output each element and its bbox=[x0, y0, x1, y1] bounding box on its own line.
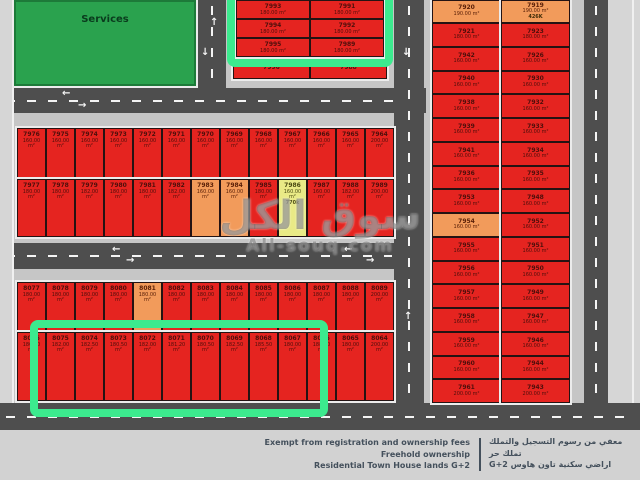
arrow-left-icon: ← bbox=[344, 245, 352, 255]
plot-7964: 7964200.00 m² bbox=[365, 128, 394, 179]
road-middle-horizontal bbox=[0, 243, 398, 269]
arrow-right-icon: → bbox=[126, 256, 134, 266]
plot-7975: 7975160.00 m² bbox=[46, 128, 75, 179]
plot-7980: 7980180.00 m² bbox=[104, 179, 133, 237]
arrow-left-icon: ← bbox=[62, 89, 70, 99]
legend-ar-line1: معفي من رسوم التسجيل والتملك bbox=[489, 436, 634, 448]
arrow-down-icon: ↓ bbox=[201, 48, 209, 58]
highlight-box-bottom bbox=[30, 320, 328, 417]
legend-english: Exempt from registration and ownership f… bbox=[150, 437, 470, 472]
plot-7983: 7983160.00 m² bbox=[191, 179, 220, 237]
plot-7986: 7986160.00 m²770k bbox=[278, 179, 307, 237]
plot-7972: 7972160.00 m² bbox=[133, 128, 162, 179]
arrow-right-icon: → bbox=[366, 256, 374, 266]
plot-8089: 8089200.00 m² bbox=[365, 282, 394, 332]
plot-7919: 7919190.00 m²426K bbox=[501, 0, 570, 23]
arrow-right-icon: → bbox=[78, 101, 86, 111]
plot-7948: 7948160.00 m² bbox=[501, 189, 570, 213]
plot-7938: 7938160.00 m² bbox=[432, 94, 501, 118]
plot-7958: 7958160.00 m² bbox=[432, 308, 501, 332]
plot-7981: 7981180.00 m² bbox=[133, 179, 162, 237]
plot-7989: 7989200.00 m² bbox=[365, 179, 394, 237]
plot-7974: 7974160.00 m² bbox=[75, 128, 104, 179]
plot-7926: 7926160.00 m² bbox=[501, 47, 570, 71]
plot-7955: 7955160.00 m² bbox=[432, 237, 501, 261]
arrow-up-icon: ↑ bbox=[210, 18, 218, 28]
plot-7949: 7949160.00 m² bbox=[501, 284, 570, 308]
plot-7987: 7987160.00 m² bbox=[307, 179, 336, 237]
plot-7935: 7935160.00 m² bbox=[501, 166, 570, 190]
plot-7960: 7960160.00 m² bbox=[432, 356, 501, 380]
plot-7967: 7967160.00 m² bbox=[278, 128, 307, 179]
plot-7977: 7977180.00 m² bbox=[17, 179, 46, 237]
legend-en-line3: Residential Town House lands G+2 bbox=[150, 460, 470, 472]
right-plot-column-west: 7920190.00 m²7921180.00 m²7942160.00 m²7… bbox=[432, 0, 501, 403]
plot-7968: 7968160.00 m² bbox=[249, 128, 278, 179]
plot-7950: 7950160.00 m² bbox=[501, 261, 570, 285]
plot-7961: 7961200.00 m² bbox=[432, 379, 501, 403]
plot-7970: 7970160.00 m² bbox=[191, 128, 220, 179]
plot-8064: 8064200.00 m² bbox=[365, 332, 394, 401]
road-center-vertical bbox=[394, 0, 424, 405]
plot-7973: 7973160.00 m² bbox=[104, 128, 133, 179]
plot-7971: 7971160.00 m² bbox=[162, 128, 191, 179]
plot-7953: 7953160.00 m² bbox=[432, 189, 501, 213]
legend-divider bbox=[479, 438, 481, 471]
land-plot-map: ← → ↑ ↓ ↓ ↑ ← → ← → Services 7993180.00 … bbox=[0, 0, 640, 480]
road-right-vertical bbox=[584, 0, 608, 403]
legend-ar-line3: اراضي سكنية تاون هاوس G+2 bbox=[489, 459, 634, 471]
plot-7978: 7978180.00 m² bbox=[46, 179, 75, 237]
services-label: Services bbox=[16, 14, 194, 25]
middle-plot-row-south: 7977180.00 m²7978180.00 m²7979182.00 m²7… bbox=[17, 179, 394, 237]
plot-7940: 7940160.00 m² bbox=[432, 71, 501, 95]
right-sidewalk-edge bbox=[632, 0, 634, 403]
arrow-left-icon: ← bbox=[112, 245, 120, 255]
plot-8065: 8065180.00 m² bbox=[336, 332, 365, 401]
services-block: Services bbox=[14, 0, 196, 86]
right-col2-stack: 7919190.00 m²426K7923180.00 m²7926160.00… bbox=[501, 0, 570, 403]
middle-row1-grid: 7976160.00 m²7975160.00 m²7974160.00 m²7… bbox=[17, 128, 394, 179]
plot-7932: 7932160.00 m² bbox=[501, 94, 570, 118]
plot-7933: 7933160.00 m² bbox=[501, 118, 570, 142]
plot-7959: 7959160.00 m² bbox=[432, 332, 501, 356]
plot-7923: 7923180.00 m² bbox=[501, 23, 570, 47]
plot-7941: 7941160.00 m² bbox=[432, 142, 501, 166]
highlight-box-top bbox=[227, 0, 393, 67]
road-services-vertical bbox=[198, 0, 226, 88]
legend-bar: Exempt from registration and ownership f… bbox=[0, 430, 640, 480]
plot-7982: 7982182.00 m² bbox=[162, 179, 191, 237]
legend-arabic: معفي من رسوم التسجيل والتملك تملك حر ارا… bbox=[489, 436, 634, 471]
plot-7979: 7979182.00 m² bbox=[75, 179, 104, 237]
plot-7985: 7985180.00 m² bbox=[249, 179, 278, 237]
plot-7936: 7936160.00 m² bbox=[432, 166, 501, 190]
plot-7921: 7921180.00 m² bbox=[432, 23, 501, 47]
plot-7976: 7976160.00 m² bbox=[17, 128, 46, 179]
plot-7930: 7930160.00 m² bbox=[501, 71, 570, 95]
arrow-down-icon: ↓ bbox=[402, 48, 410, 58]
plot-7943: 7943200.00 m² bbox=[501, 379, 570, 403]
plot-7966: 7966160.00 m² bbox=[307, 128, 336, 179]
plot-7946: 7946160.00 m² bbox=[501, 332, 570, 356]
legend-en-line2: Freehold ownership bbox=[150, 449, 470, 461]
plot-7951: 7951160.00 m² bbox=[501, 237, 570, 261]
middle-row2-grid: 7977180.00 m²7978180.00 m²7979182.00 m²7… bbox=[17, 179, 394, 237]
plot-7952: 7952160.00 m² bbox=[501, 213, 570, 237]
plot-7942: 7942160.00 m² bbox=[432, 47, 501, 71]
plot-7965: 7965160.00 m² bbox=[336, 128, 365, 179]
plot-7969: 7969160.00 m² bbox=[220, 128, 249, 179]
plot-8088: 8088180.00 m² bbox=[336, 282, 365, 332]
middle-plot-row-north: 7976160.00 m²7975160.00 m²7974160.00 m²7… bbox=[17, 128, 394, 179]
plot-7956: 7956160.00 m² bbox=[432, 261, 501, 285]
plot-7988: 7988182.00 m² bbox=[336, 179, 365, 237]
arrow-up-icon: ↑ bbox=[404, 312, 412, 322]
plot-7957: 7957160.00 m² bbox=[432, 284, 501, 308]
right-col1-stack: 7920190.00 m²7921180.00 m²7942160.00 m²7… bbox=[432, 0, 501, 403]
plot-7939: 7939160.00 m² bbox=[432, 118, 501, 142]
right-plot-column-east: 7919190.00 m²426K7923180.00 m²7926160.00… bbox=[501, 0, 570, 403]
right-sidewalk-strip bbox=[608, 0, 640, 403]
plot-7947: 7947160.00 m² bbox=[501, 308, 570, 332]
plot-7920: 7920190.00 m² bbox=[432, 0, 501, 23]
plot-7944: 7944160.00 m² bbox=[501, 356, 570, 380]
plot-7954: 7954160.00 m² bbox=[432, 213, 501, 237]
legend-ar-line2: تملك حر bbox=[489, 448, 634, 460]
legend-en-line1: Exempt from registration and ownership f… bbox=[150, 437, 470, 449]
plot-7984: 7984160.00 m² bbox=[220, 179, 249, 237]
plot-7934: 7934160.00 m² bbox=[501, 142, 570, 166]
left-sidewalk-strip bbox=[0, 0, 12, 403]
